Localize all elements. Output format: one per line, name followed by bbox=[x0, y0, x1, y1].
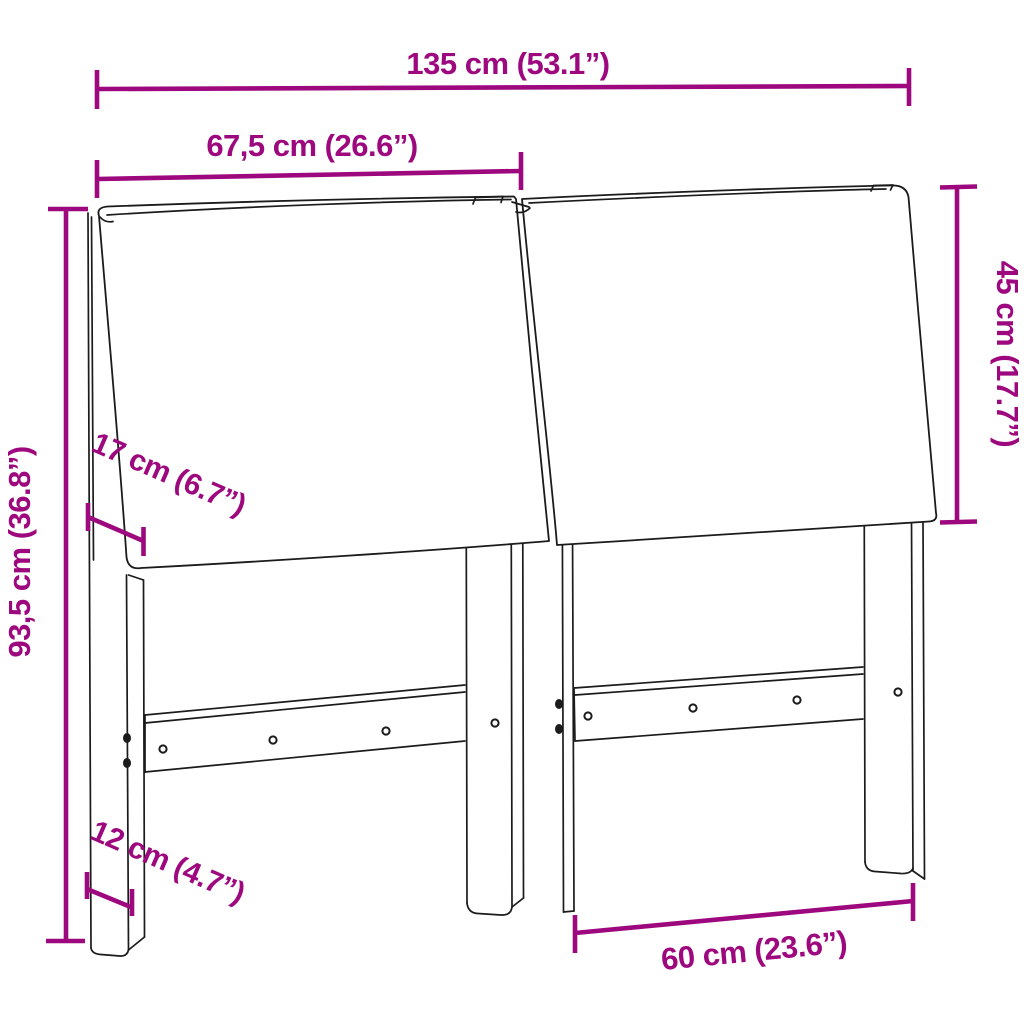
dim-label-cushion-height: 45 cm (17.7”) bbox=[990, 261, 1024, 448]
dim-label-leg-span: 60 cm (23.6”) bbox=[659, 924, 848, 977]
dim-label-leg-depth: 12 cm (4.7”) bbox=[86, 814, 250, 910]
dimension-diagram: 135 cm (53.1”) 67,5 cm (26.6”) 45 cm (17… bbox=[0, 0, 1024, 1024]
crossbar-left bbox=[145, 685, 465, 772]
dim-leg-span: 60 cm (23.6”) bbox=[575, 883, 913, 977]
dim-label-total-height: 93,5 cm (36.8”) bbox=[2, 446, 37, 657]
edge-screws bbox=[123, 699, 563, 768]
dim-label-total-width: 135 cm (53.1”) bbox=[406, 46, 609, 81]
dim-total-height: 93,5 cm (36.8”) bbox=[2, 208, 88, 941]
crossbar-right bbox=[574, 667, 863, 741]
screw-holes bbox=[159, 688, 901, 752]
dim-leg-depth: 12 cm (4.7”) bbox=[86, 814, 250, 916]
cushion-right bbox=[512, 185, 936, 545]
cushion-left bbox=[98, 197, 549, 569]
dim-cushion-height: 45 cm (17.7”) bbox=[940, 187, 1024, 523]
dim-label-half-width: 67,5 cm (26.6”) bbox=[206, 128, 417, 163]
dim-total-width: 135 cm (53.1”) bbox=[97, 46, 909, 109]
headboard-drawing bbox=[88, 185, 936, 956]
headboard-diagram-canvas: 135 cm (53.1”) 67,5 cm (26.6”) 45 cm (17… bbox=[0, 0, 1024, 1024]
dim-half-width: 67,5 cm (26.6”) bbox=[97, 128, 521, 198]
